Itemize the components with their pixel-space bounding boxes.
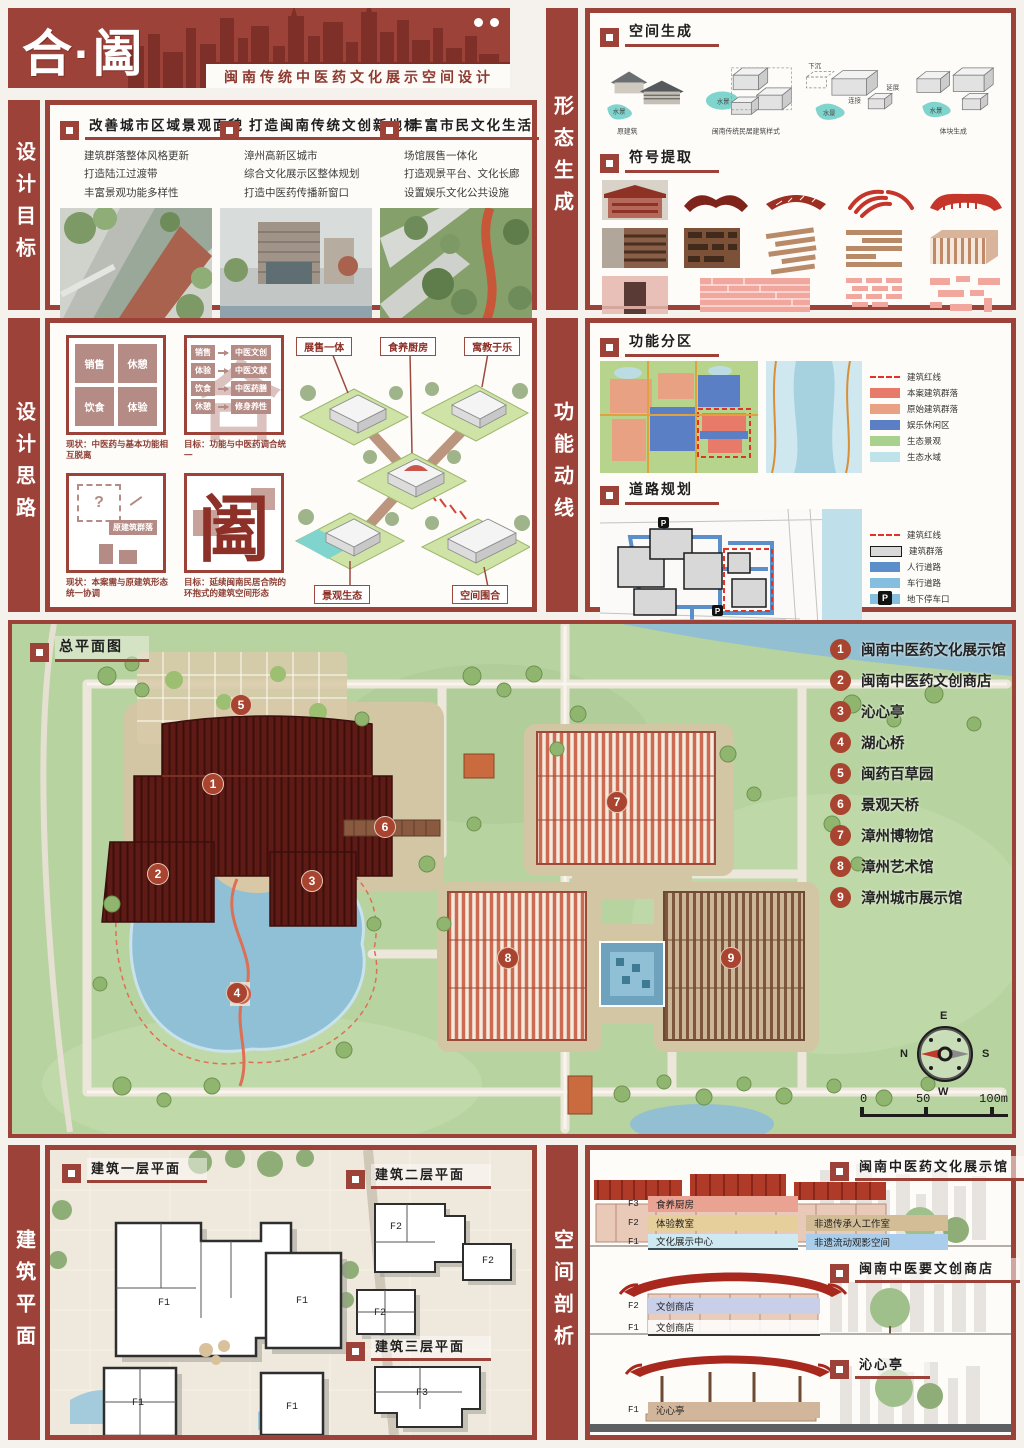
- section-marker-icon: [600, 486, 619, 505]
- goal-photo-building: [220, 208, 372, 324]
- goal-bullet: 漳州高新区城市: [244, 147, 372, 165]
- goal-column: 改善城市区域景观面貌 建筑群落整体风格更新 打造陆江过渡带 丰富景观功能多样性: [60, 114, 212, 324]
- sidebar-function-circulation: 功能动线: [546, 318, 578, 612]
- floor-table-3: F1 沁心亭: [628, 1402, 820, 1421]
- analysis-header-1: 闽南中医药文化展示馆: [830, 1156, 1024, 1181]
- original-cluster-label: 原建筑群落: [109, 520, 157, 535]
- sidebar-space-analysis: 空间剖析: [546, 1145, 578, 1440]
- section-marker-icon: [346, 1170, 365, 1189]
- space-gen-title: 空间生成: [625, 21, 719, 47]
- floor-label: F1: [296, 1296, 308, 1307]
- map-marker: 3: [301, 870, 323, 892]
- diagram-caption: 现状：本案需与原建筑形态统一协调: [66, 577, 170, 600]
- goal-column: 打造闽南传统文创新地标 漳州高新区城市 综合文化展示区整体规划 打造中医药传播新…: [220, 114, 372, 324]
- zoning-map: [600, 361, 862, 473]
- svg-text:体块生成: 体块生成: [940, 126, 967, 135]
- dot-icon: [474, 18, 483, 27]
- goal-photo-street: [60, 208, 212, 324]
- arrow-icon: [218, 352, 228, 354]
- arrow-icon: [218, 370, 228, 372]
- poster: 合·阖 闽南传统中医药文化展示空间设计 设计目标 形态生成 设计思路 功能动线 …: [0, 0, 1024, 1448]
- svg-text:原建筑: 原建筑: [617, 126, 638, 135]
- panel-design-goals: 改善城市区域景观面貌 建筑群落整体风格更新 打造陆江过渡带 丰富景观功能多样性: [45, 100, 537, 310]
- thinking-diagrams: 销售 休憩 饮食 体验 现状：中医药与基本功能相互脱离 合 销售中医文创 体验中…: [60, 335, 290, 603]
- goal-bullet: 打造中医药传播新窗口: [244, 184, 372, 202]
- plan1-header: 建筑一层平面: [62, 1158, 207, 1183]
- compass-icon: [919, 1028, 971, 1080]
- iso-label: 寓教于乐: [464, 337, 520, 356]
- diagram-goal-mapping: 合 销售中医文创 体验中医文献 饮食中医药膳 休憩修身养性: [184, 335, 284, 435]
- goal-bullet: 场馆展售一体化: [404, 147, 532, 165]
- space-gen-step-massing: 水景 体块生成: [906, 51, 1001, 143]
- svg-text:延展: 延展: [886, 83, 899, 92]
- panel-form-generation: 空间生成 水景 原建筑 水景 闽南传统民居建筑: [585, 8, 1016, 310]
- map-marker: 2: [147, 863, 169, 885]
- map-marker: 7: [606, 791, 628, 813]
- panel-design-thinking: 销售 休憩 饮食 体验 现状：中医药与基本功能相互脱离 合 销售中医文创 体验中…: [45, 318, 537, 612]
- compass-n-label: N: [900, 1048, 908, 1060]
- sidebar-floor-plans: 建筑平面: [8, 1145, 40, 1440]
- plan2-header: 建筑二层平面: [346, 1164, 491, 1189]
- arrow-icon: [218, 388, 228, 390]
- svg-text:下沉: 下沉: [808, 62, 821, 70]
- diagram-caption: 现状：中医药与基本功能相互脱离: [66, 439, 170, 462]
- map-marker: 9: [720, 947, 742, 969]
- map-marker: 8: [497, 947, 519, 969]
- compass-s-label: S: [982, 1048, 989, 1060]
- floor-label: F2: [482, 1256, 494, 1267]
- floor-label: F1: [158, 1298, 170, 1309]
- svg-text:连接: 连接: [848, 95, 861, 104]
- iso-label: 食养厨房: [380, 337, 436, 356]
- floor-label: F2: [374, 1308, 386, 1319]
- diagram-current-form: ? 原建筑群落: [66, 473, 166, 573]
- floor-label: F1: [286, 1402, 298, 1413]
- dot-icon: [490, 18, 499, 27]
- question-box: ?: [77, 484, 121, 522]
- panel-function-circulation: 功能分区: [585, 318, 1016, 612]
- section-marker-icon: [830, 1264, 849, 1283]
- section-marker-icon: [60, 121, 79, 140]
- scale-bar: 0 50 100m: [860, 1092, 1008, 1117]
- section-marker-icon: [600, 154, 619, 173]
- floor-table-1: F3 食养厨房 F2 体验教室 非遗传承人工作室 F1 文化展示中心 非遗流动观…: [628, 1196, 948, 1253]
- compass-e-label: E: [940, 1010, 947, 1022]
- master-plan-legend: 1闽南中医药文化展示馆 2闽南中医药文创商店 3沁心亭 4湖心桥 5闽药百草园 …: [830, 638, 1006, 917]
- he2-glyph: 阖: [187, 476, 281, 570]
- section-marker-icon: [830, 1162, 849, 1181]
- goal-bullet: 丰富景观功能多样性: [84, 184, 212, 202]
- arrow-icon: [130, 496, 143, 506]
- floor-label: F2: [390, 1222, 402, 1233]
- zoning-title: 功能分区: [625, 331, 719, 357]
- sidebar-design-goals: 设计目标: [8, 100, 40, 310]
- space-gen-step-original: 水景 原建筑: [600, 51, 691, 143]
- map-marker: 5: [230, 694, 252, 716]
- poster-subtitle-box: 闽南传统中医药文化展示空间设计: [204, 62, 510, 88]
- iso-label: 空间围合: [452, 585, 508, 604]
- poster-subtitle: 闽南传统中医药文化展示空间设计: [224, 67, 494, 87]
- header-banner: 合·阖 闽南传统中医药文化展示空间设计: [8, 8, 510, 88]
- svg-text:P: P: [661, 519, 667, 528]
- map-marker: 1: [202, 773, 224, 795]
- goal-column: 丰富市民文化生活 场馆展售一体化 打造观景平台、文化长廊 设置娱乐文化公共设施: [380, 114, 532, 324]
- svg-text:水景: 水景: [930, 105, 943, 114]
- goal-bullet: 打造观景平台、文化长廊: [404, 165, 532, 183]
- diagram-current-functions: 销售 休憩 饮食 体验: [66, 335, 166, 435]
- svg-text:水景: 水景: [613, 106, 626, 115]
- sidebar-design-thinking: 设计思路: [8, 318, 40, 612]
- space-gen-steps: 水景 原建筑 水景 闽南传统民居建筑样式 下沉: [600, 51, 1001, 143]
- section-marker-icon: [380, 121, 399, 140]
- iso-label: 景观生态: [314, 585, 370, 604]
- section-marker-icon: [346, 1342, 365, 1361]
- goal-photo-park: [380, 208, 532, 324]
- parking-icon: P: [870, 594, 900, 604]
- diagram-caption: 目标：延续闽南民居合院的环抱式的建筑空间形态: [184, 577, 288, 600]
- master-plan-title: 总平面图: [30, 636, 149, 662]
- diagram-goal-form: 阖: [184, 473, 284, 573]
- analysis-header-2: 闽南中医要文创商店: [830, 1258, 1020, 1283]
- section-marker-icon: [830, 1360, 849, 1379]
- symbol-grid: [600, 178, 1001, 321]
- poster-logo: 合·阖: [22, 14, 145, 86]
- iso-label: 展售一体: [296, 337, 352, 356]
- goal-title: 丰富市民文化生活: [405, 114, 539, 140]
- zoning-legend: 建筑红线 本案建筑群落 原始建筑群落 娱乐休闲区 生态景观 生态水域: [870, 367, 958, 467]
- roads-title: 道路规划: [625, 479, 719, 505]
- svg-text:水景: 水景: [823, 108, 836, 117]
- map-marker: 4: [226, 982, 248, 1004]
- section-marker-icon: [220, 121, 239, 140]
- panel-floor-plans: 建筑一层平面 建筑二层平面 建筑三层平面 F1 F1 F1 F1 F2 F2 F…: [45, 1145, 537, 1440]
- section-marker-icon: [600, 28, 619, 47]
- master-plan: E N S W 总平面图 1 2 3 4 5 6 7 8 9 1闽南中医药文化展…: [8, 620, 1016, 1138]
- section-marker-icon: [62, 1164, 81, 1183]
- panel-space-analysis: 闽南中医药文化展示馆 闽南中医要文创商店 沁心亭 F3 食养厨房 F2 体验教室…: [585, 1145, 1016, 1440]
- svg-text:水景: 水景: [717, 96, 730, 105]
- goal-bullet: 建筑群落整体风格更新: [84, 147, 212, 165]
- space-gen-step-style: 水景 闽南传统民居建筑样式: [695, 51, 797, 143]
- redline-swatch: [870, 534, 900, 536]
- svg-text:P: P: [715, 607, 721, 616]
- plan3-header: 建筑三层平面: [346, 1336, 491, 1361]
- space-gen-step-operations: 下沉 连接 延展 水景: [801, 51, 903, 143]
- floor-plan-context: [50, 1150, 532, 1435]
- map-marker: 6: [374, 816, 396, 838]
- goal-bullet: 设置娱乐文化公共设施: [404, 184, 532, 202]
- analysis-header-3: 沁心亭: [830, 1354, 930, 1379]
- floor-label: F3: [416, 1388, 428, 1399]
- svg-text:闽南传统民居建筑样式: 闽南传统民居建筑样式: [712, 126, 780, 135]
- floor-table-2: F2 文创商店 F1 文创商店: [628, 1298, 820, 1339]
- arrow-icon: [218, 406, 228, 408]
- sidebar-form-generation: 形态生成: [546, 8, 578, 310]
- floor-label: F1: [132, 1398, 144, 1409]
- iso-diagram: 展售一体 食养厨房 寓教于乐 景观生态 空间围合: [292, 335, 522, 603]
- section-marker-icon: [30, 643, 49, 662]
- roads-legend: 建筑红线 建筑群落 人行道路 车行道路 P 地下停车口: [870, 525, 950, 609]
- redline-swatch: [870, 376, 900, 378]
- symbol-title: 符号提取: [625, 147, 719, 173]
- section-marker-icon: [600, 338, 619, 357]
- analysis-backdrop: [590, 1150, 1011, 1435]
- roads-map: P P: [600, 509, 862, 625]
- goal-bullet: 综合文化展示区整体规划: [244, 165, 372, 183]
- goal-bullet: 打造陆江过渡带: [84, 165, 212, 183]
